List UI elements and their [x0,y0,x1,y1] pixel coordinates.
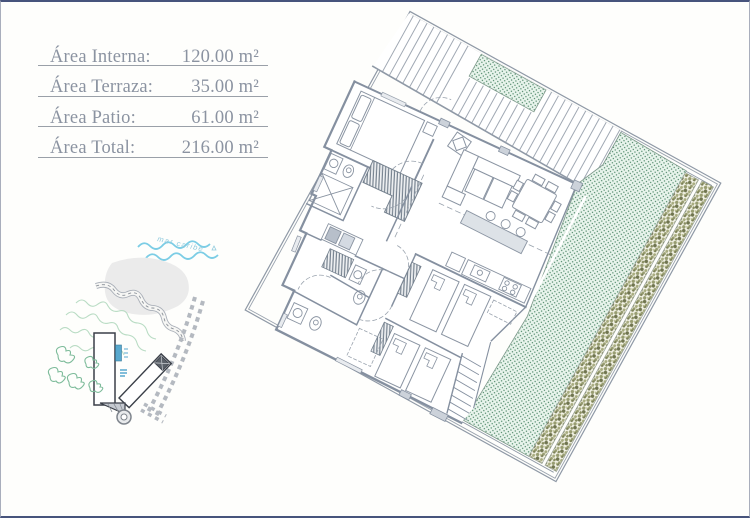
svg-text:mar caribe: mar caribe [157,234,205,253]
